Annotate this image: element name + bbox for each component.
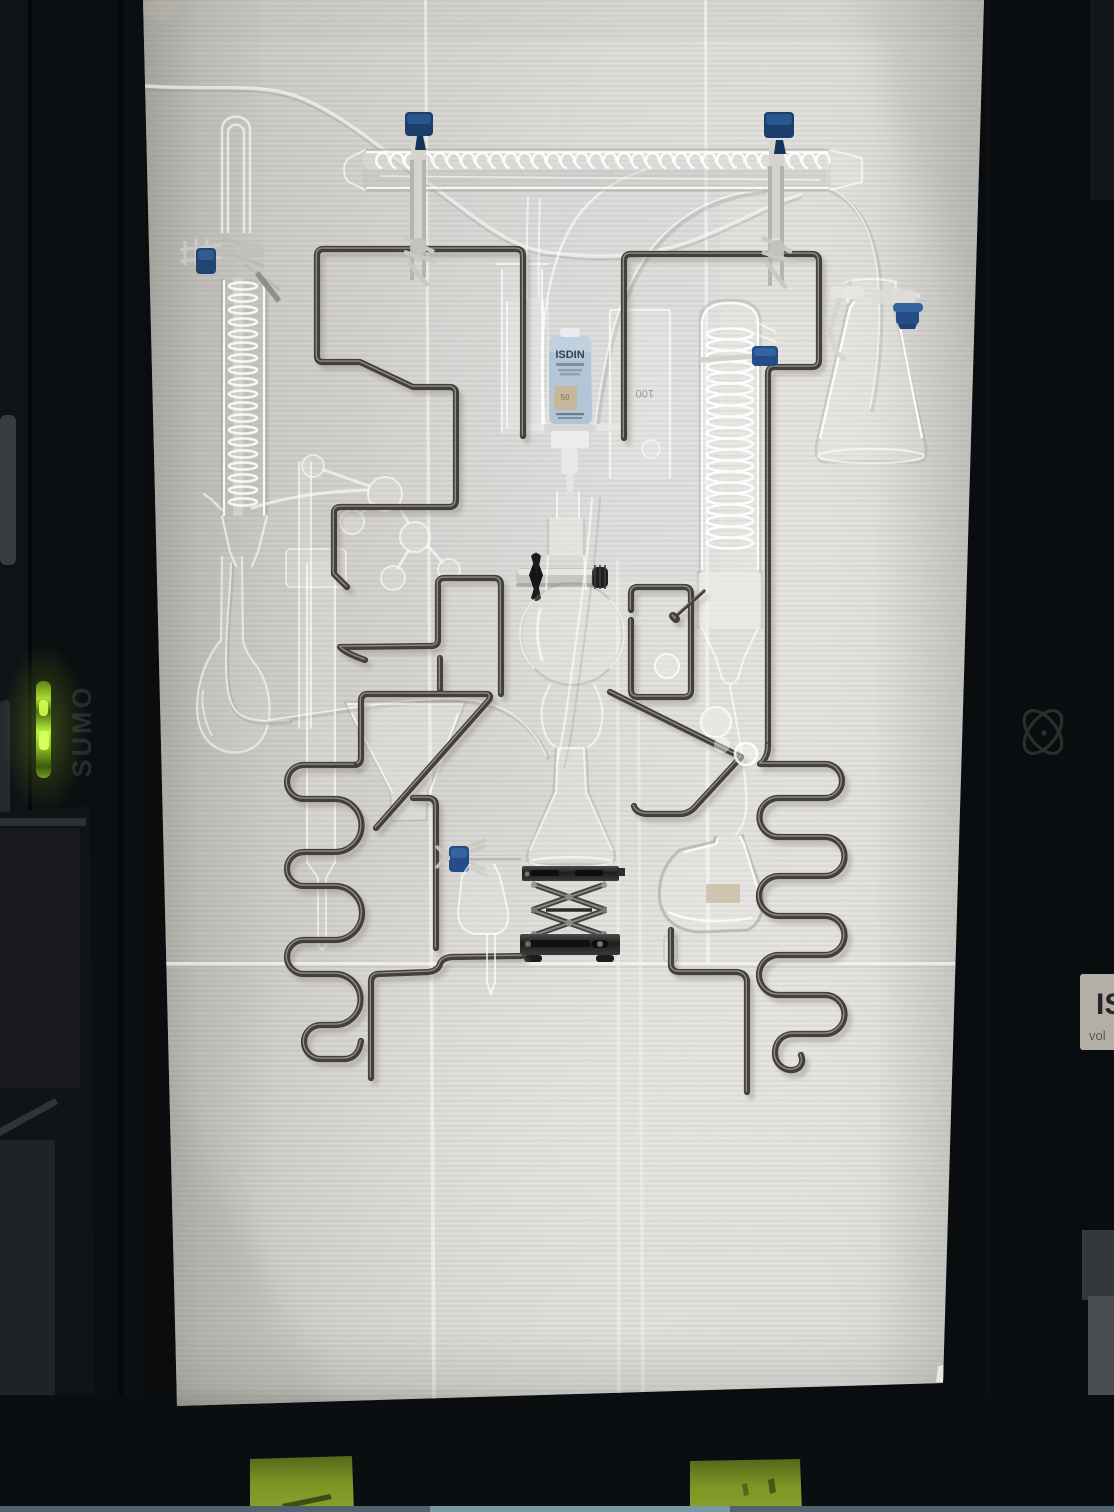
svg-text:IS: IS bbox=[1096, 988, 1114, 1021]
svg-text:ISDIN: ISDIN bbox=[555, 349, 584, 361]
svg-text:vol: vol bbox=[1089, 1028, 1106, 1043]
svg-text:100: 100 bbox=[636, 387, 654, 399]
svg-text:50: 50 bbox=[561, 393, 570, 402]
